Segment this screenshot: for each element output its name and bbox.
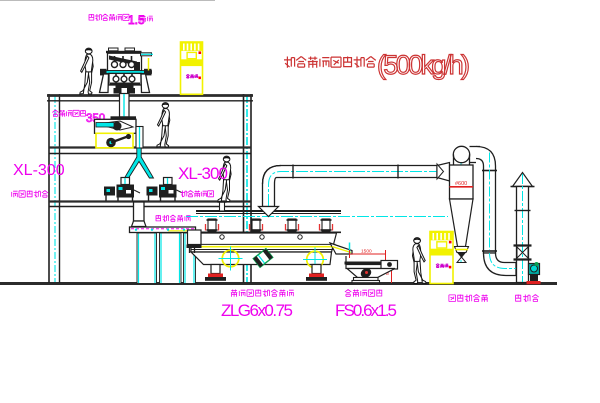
svg-text:XL-300: XL-300: [13, 162, 65, 179]
svg-text:1500: 1500: [361, 249, 372, 255]
svg-text:FS0.6x1.5: FS0.6x1.5: [335, 301, 397, 320]
svg-text:ZLG6x0.75: ZLG6x0.75: [221, 301, 293, 320]
svg-text:XL-300: XL-300: [178, 164, 228, 183]
svg-text:(500kg/h): (500kg/h): [377, 50, 470, 80]
svg-text:#600: #600: [455, 181, 467, 187]
